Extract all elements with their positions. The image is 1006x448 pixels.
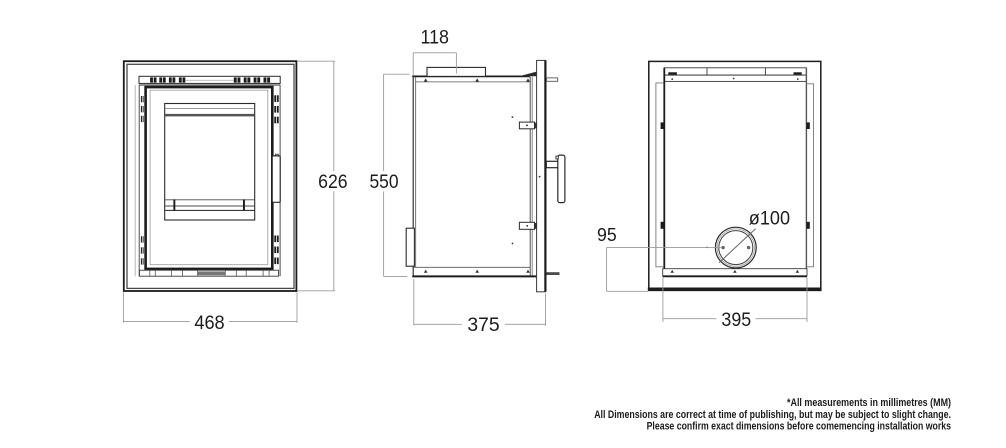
svg-text:550: 550 bbox=[369, 172, 398, 193]
svg-text:ø100: ø100 bbox=[749, 209, 790, 230]
svg-text:Please confirm exact dimension: Please confirm exact dimensions before c… bbox=[647, 421, 951, 433]
svg-text:All Dimensions are correct at: All Dimensions are correct at time of pu… bbox=[594, 409, 951, 421]
svg-text:468: 468 bbox=[194, 313, 224, 334]
svg-text:118: 118 bbox=[421, 27, 449, 48]
svg-text:95: 95 bbox=[597, 225, 617, 245]
svg-text:*All measurements in millimetr: *All measurements in millimetres (MM) bbox=[787, 397, 951, 409]
svg-text:395: 395 bbox=[721, 310, 751, 331]
svg-text:375: 375 bbox=[467, 315, 499, 336]
svg-text:626: 626 bbox=[318, 172, 348, 193]
